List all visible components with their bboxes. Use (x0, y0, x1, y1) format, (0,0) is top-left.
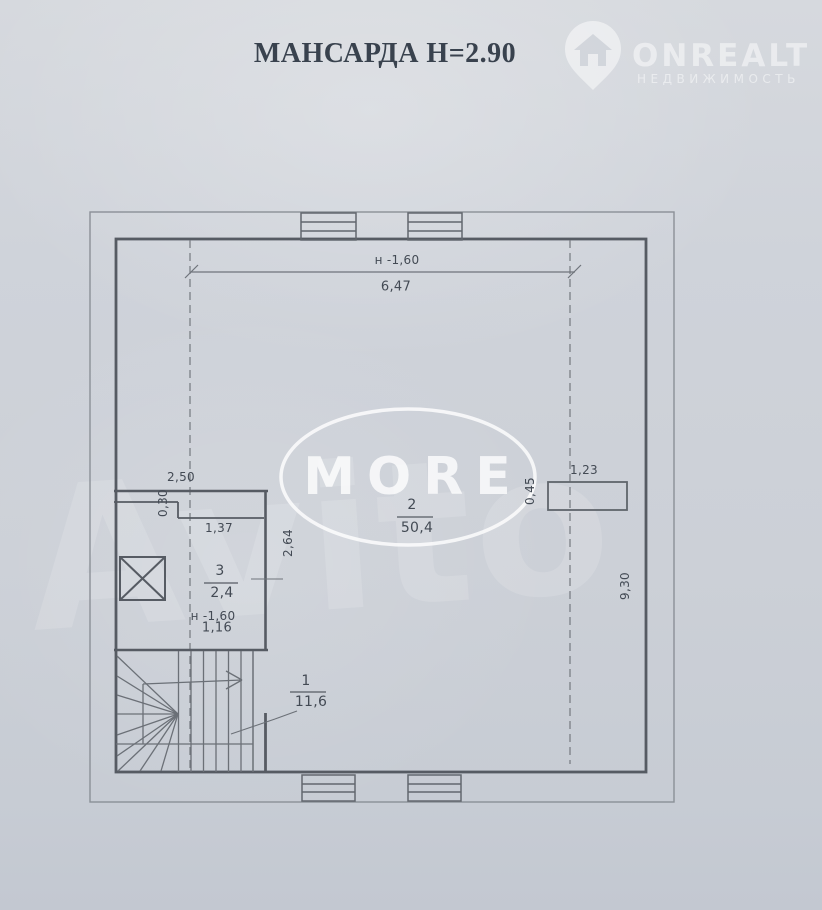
left-width-label: 2,50 (167, 470, 195, 484)
chimney-width-label: 1,23 (570, 463, 598, 477)
room-3-walls (114, 491, 283, 650)
room-3-number-label: 3 (215, 563, 224, 579)
niche-depth-label: 2,64 (281, 529, 295, 557)
right-offset-label: 0,45 (523, 477, 537, 505)
top-height-mark-label: н -1,60 (375, 253, 420, 267)
scanned-floor-plan-photo: МАНСАРДА Н=2.90 ONREALT НЕДВИЖИМОСТЬ Avi… (0, 0, 822, 910)
shaft-x-box (120, 557, 165, 600)
top-width-label: 6,47 (381, 280, 411, 295)
right-depth-label: 9,30 (618, 572, 632, 600)
room-2-number-label: 2 (407, 497, 416, 513)
room-3-width-label: 1,16 (202, 621, 232, 636)
staircase (116, 651, 297, 772)
room-1-number-label: 1 (301, 673, 310, 689)
room-3-area-label: 2,4 (210, 585, 233, 601)
niche-width-label: 1,37 (205, 521, 233, 535)
window-symbols-bottom (302, 775, 461, 801)
step-depth-label: 0,30 (156, 489, 170, 517)
room-1-area-label: 11,6 (295, 694, 327, 710)
room-2-area-label: 50,4 (401, 520, 433, 536)
window-symbols-top (301, 213, 462, 240)
stair-direction-arrow (143, 671, 242, 689)
chimney-rect (548, 482, 627, 510)
winder-fan (117, 656, 178, 771)
